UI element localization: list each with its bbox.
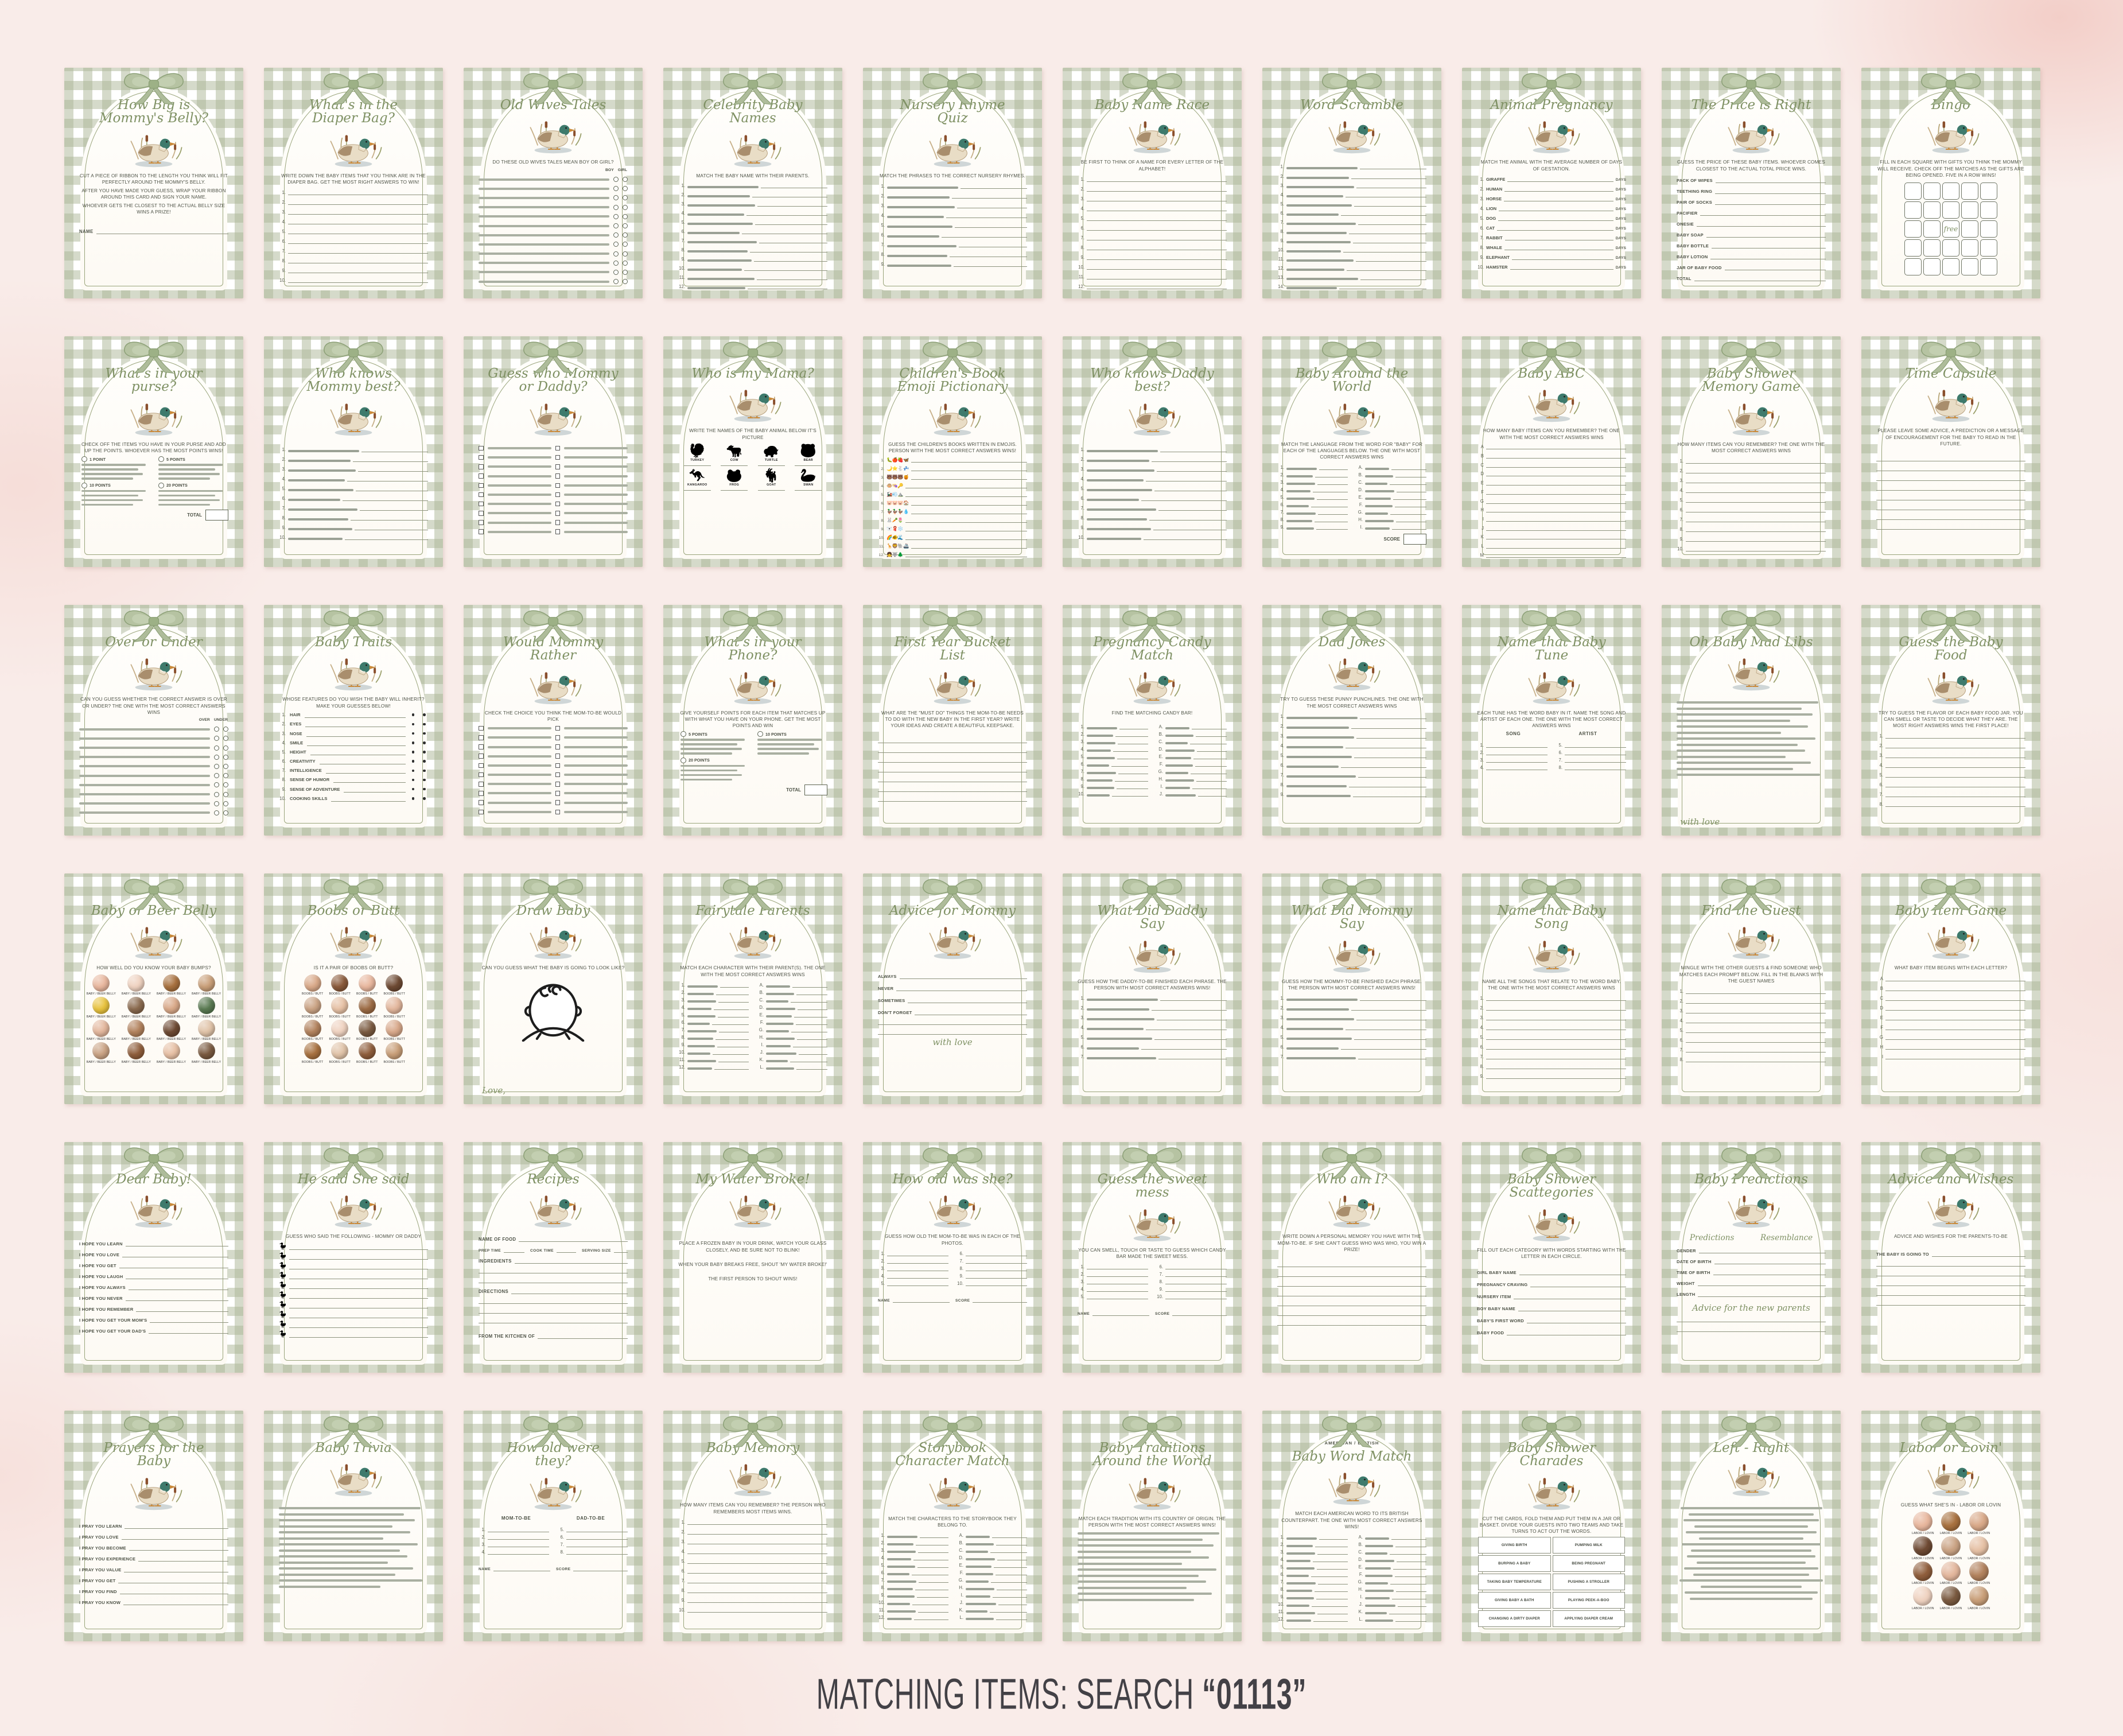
mommy-dot <box>412 797 415 800</box>
line-number: 4. <box>878 1273 885 1279</box>
checkbox <box>555 483 561 488</box>
answer-line <box>721 488 748 491</box>
answer-line <box>1087 273 1227 279</box>
checkbox <box>479 511 484 516</box>
either-or-row <box>479 491 628 498</box>
question-text-line <box>1087 469 1154 472</box>
answer-line <box>718 1011 749 1017</box>
line-number: 5. <box>1078 1035 1084 1040</box>
photo-label: LABOR / LOVIN <box>1940 1557 1962 1560</box>
answer-line <box>333 776 406 783</box>
answer-line <box>714 1063 749 1070</box>
line-number: 1. <box>279 712 286 717</box>
choice-circle <box>623 186 628 191</box>
column-headers: SONGARTIST <box>1477 731 1626 738</box>
question-line: 9. <box>279 523 428 530</box>
fine-print-line <box>81 477 133 480</box>
numbered-answer-line: 6. <box>678 1566 827 1574</box>
checkbox <box>479 800 484 805</box>
game-card: RecipesNAME OF FOODPREP TIMECOOK TIMESER… <box>464 1142 643 1373</box>
card-instructions: PLACE A FROZEN BABY IN YOUR DRINK, WATCH… <box>678 1240 827 1253</box>
question-text-line <box>1286 756 1352 758</box>
card-instructions: DO THESE OLD WIVES TALES MEAN BOY OR GIR… <box>479 159 628 165</box>
question-text-line <box>288 450 359 452</box>
animal-name: WHALE <box>1486 245 1502 250</box>
question-line: 6. <box>1078 1042 1227 1050</box>
gestation-match-line: 9.ELEPHANTDAYS <box>1477 253 1626 260</box>
line-number: 8. <box>557 1549 564 1555</box>
game-card: Nursery Rhyme QuizMATCH THE PHRASES TO T… <box>863 68 1042 298</box>
blank-answer-line <box>479 1296 628 1304</box>
answer-line <box>1686 496 1826 503</box>
line-number: 7. <box>1677 517 1683 522</box>
photo-label: BOOBS / BUTT <box>302 1015 324 1019</box>
labeled-answer-line: BABY FOOD <box>1477 1326 1626 1335</box>
line-letter: C <box>1477 463 1484 468</box>
card-body: PLEASE LEAVE SOME ADVICE, A PREDICTION O… <box>1875 426 2027 558</box>
match-text-line <box>687 1067 712 1070</box>
game-card: How old were they?MOM-TO-BEDAD-TO-BE1.2.… <box>464 1411 643 1641</box>
answer-line <box>1341 1043 1426 1050</box>
line-letter: D <box>1876 1005 1883 1011</box>
match-line: K. <box>1356 1607 1426 1614</box>
question-text-line <box>1087 999 1158 1001</box>
line-number: 4. <box>479 1549 485 1555</box>
photo-label: LABOR / LOVIN <box>1968 1582 1990 1585</box>
line-letter: A <box>1876 976 1883 981</box>
match-text-line <box>1087 735 1113 737</box>
duck-illustration <box>722 1187 784 1232</box>
fine-print-line <box>479 243 609 246</box>
photo-cell: BABY / BEER BELLY <box>157 974 186 996</box>
photo-cell: BOOBS / BUTT <box>384 1042 406 1064</box>
match-line: 3. <box>878 1545 948 1553</box>
match-text-line <box>1087 794 1110 797</box>
line-label: BABY BOTTLE <box>1677 243 1709 248</box>
spacer <box>279 1502 428 1503</box>
line-marker: 8. <box>878 1585 885 1590</box>
fine-print-line <box>1078 1593 1212 1595</box>
answer-line <box>1152 456 1227 462</box>
answer-line <box>1396 1586 1426 1592</box>
duck-illustration <box>1521 113 1582 157</box>
answer-line <box>1565 764 1626 770</box>
fine-print-line <box>681 765 745 767</box>
line-label: I PRAY YOU BECOME <box>79 1545 126 1551</box>
numbered-answer-line: 5. <box>1078 213 1227 221</box>
match-columns: 1.2.3.4.5.6.7.8.9.10.11.12.A.B.C.D.E.F.G… <box>878 1531 1027 1620</box>
answer-line <box>795 488 822 491</box>
answer-line <box>966 1257 1027 1264</box>
answer-line <box>1198 790 1227 797</box>
numbered-answer-line: 2. <box>1477 748 1547 755</box>
choice-row <box>79 735 228 742</box>
mommy-dot <box>412 741 415 744</box>
line-marker: B. <box>757 990 764 995</box>
answer-line <box>1349 228 1426 234</box>
answer-line <box>761 182 828 188</box>
days-suffix: DAYS <box>1616 178 1626 182</box>
line-marker: I. <box>956 1593 963 1598</box>
days-suffix: DAYS <box>1616 217 1626 221</box>
line-marker: L. <box>1356 1617 1363 1622</box>
card-body: GUESS WHO SAID THE FOLLOWING - MOMMY OR … <box>278 1232 429 1364</box>
line-number: 1. <box>1277 714 1284 719</box>
either-or-row <box>479 500 628 507</box>
answer-line <box>716 1034 749 1040</box>
answer-line <box>356 485 428 491</box>
answer-line <box>614 1246 628 1253</box>
numbered-answer-line: 1. <box>479 1525 549 1532</box>
checkbox <box>479 744 484 749</box>
fine-print-line <box>158 495 215 497</box>
match-left-column: 1.2.3.4.5.6.7.8.9.10.11.12. <box>1277 1532 1348 1622</box>
answer-line <box>795 463 822 466</box>
game-card: Who knows Mommy best?1.2.3.4.5.6.7.8.9.1… <box>264 336 443 567</box>
duck-illustration <box>1920 113 1982 157</box>
numbered-answer-line: 7. <box>1677 515 1826 522</box>
checkbox <box>479 520 484 525</box>
card-instructions: FILL OUT EACH CATEGORY WITH WORDS STARTI… <box>1477 1247 1626 1260</box>
column-header: MOM-TO-BE <box>501 1516 531 1523</box>
lettered-answer-line: E <box>1876 1013 2025 1020</box>
question-line: 3. <box>1277 181 1426 188</box>
line-number: 7. <box>1677 1047 1683 1053</box>
numbered-answer-line: 10. <box>1078 262 1227 270</box>
numbered-answer-line: 1. <box>1078 174 1227 182</box>
line-label: I PRAY YOU GET <box>79 1578 115 1583</box>
bingo-cell <box>1904 201 1922 219</box>
numbered-answer-line: 3. <box>279 207 428 215</box>
answer-line <box>721 463 748 466</box>
line-number: 6. <box>1277 211 1284 216</box>
answer-line <box>796 1063 827 1070</box>
question-line: 11. <box>1277 255 1426 262</box>
question-line: 3. <box>1078 1013 1227 1020</box>
fine-print-line <box>1701 1586 1802 1588</box>
numbered-answer-line: 4. <box>1876 760 2025 768</box>
line-marker: C. <box>1356 1549 1363 1555</box>
match-text-line <box>1286 490 1311 492</box>
match-line: 8. <box>1277 1584 1348 1592</box>
option-text-line <box>488 746 551 748</box>
line-number: 4. <box>279 740 286 745</box>
duck-silhouette-icon: 🦆 <box>279 1331 287 1338</box>
match-text-line <box>966 1618 994 1620</box>
option-text-line <box>564 811 628 813</box>
answer-line <box>149 1327 228 1334</box>
answer-line <box>305 712 406 718</box>
line-number: 2. <box>1277 174 1284 179</box>
answer-line <box>1510 263 1613 270</box>
emoji-clue: 🌙⭐🐇💤 <box>886 467 909 471</box>
numbered-answer-line: 7. <box>956 1256 1027 1264</box>
option-text-line <box>488 465 551 468</box>
line-number: 1. <box>678 183 685 188</box>
numbered-answer-line: 7. <box>1677 1045 1826 1053</box>
fine-print-line <box>79 747 210 749</box>
line-number: 1. <box>1078 1264 1084 1269</box>
points-circle <box>81 456 87 462</box>
line-letter: K <box>1477 534 1484 539</box>
answer-line <box>1360 163 1427 169</box>
answer-line <box>1196 731 1227 737</box>
answer-line <box>358 465 428 472</box>
line-label: I PRAY YOU FIND <box>79 1589 117 1594</box>
answer-line <box>1192 723 1227 729</box>
spacer <box>878 1288 1027 1292</box>
points-items <box>81 490 149 506</box>
points-label: 5 POINTS <box>166 457 185 462</box>
duck-illustration <box>522 395 584 440</box>
blank-answer-line <box>1277 1260 1426 1267</box>
answer-line <box>719 1026 749 1032</box>
line-marker: 5. <box>1277 495 1284 500</box>
answer-line <box>351 514 428 521</box>
answer-line <box>966 1265 1027 1271</box>
answer-line <box>878 776 1027 782</box>
write-in-field: NAME <box>1078 1307 1149 1316</box>
line-marker: G. <box>956 1578 963 1583</box>
bingo-cell <box>1980 239 1997 257</box>
numbered-answer-line: 5. <box>678 1556 827 1564</box>
fine-print-line <box>279 1507 421 1509</box>
line-number: 2. <box>678 1529 685 1535</box>
either-or-row <box>479 472 628 479</box>
photo-cell: BOOBS / BUTT <box>302 1020 324 1042</box>
choice-circle <box>613 251 619 257</box>
numbered-answer-line: 3. <box>1078 1277 1148 1284</box>
answer-line <box>289 1322 428 1328</box>
match-text-line <box>966 1573 993 1575</box>
card-instructions: HOW MANY BABY ITEMS CAN YOU REMEMBER? TH… <box>1477 428 1626 440</box>
answer-line <box>519 1236 628 1242</box>
match-line: 9. <box>1277 522 1348 530</box>
numbered-answer-line: 1. <box>678 1517 827 1525</box>
answer-line <box>1885 752 2025 758</box>
answer-line <box>1686 988 1826 994</box>
photo-cell: BOOBS / BUTT <box>329 997 351 1019</box>
emoji-clue-row: 2.🌙⭐🐇💤 <box>878 465 1027 471</box>
question-text-line <box>687 269 742 271</box>
match-text-line <box>1286 520 1312 522</box>
line-label: BABY SOAP <box>1677 232 1704 238</box>
match-text-line <box>887 1566 915 1568</box>
blank-answer-line <box>878 1017 1027 1025</box>
bow-icon <box>316 605 391 647</box>
line-marker: C. <box>956 1548 963 1553</box>
daddy-dot <box>423 732 426 735</box>
answer-line <box>954 261 1027 267</box>
card-instructions: GUESS THE PRICE OF THESE BABY ITEMS. WHO… <box>1677 159 1826 172</box>
photo-cell: BOOBS / BUTT <box>356 997 378 1019</box>
match-line: 6. <box>1277 500 1348 507</box>
choice-circle <box>214 736 219 741</box>
line-number: 6. <box>1277 1044 1284 1050</box>
labeled-answer-line: PACIFIER <box>1677 207 1826 216</box>
answer-line <box>991 1576 1027 1583</box>
answer-line <box>1395 471 1426 477</box>
answer-line <box>1395 1615 1426 1622</box>
line-number: 9. <box>1477 1074 1484 1079</box>
line-label: I HOPE YOU LOVE <box>79 1252 119 1257</box>
answer-line <box>1360 274 1426 280</box>
card-instructions: AFTER YOU HAVE MADE YOUR GUESS, WRAP YOU… <box>79 188 228 200</box>
question-text-line <box>1286 250 1341 253</box>
photo-cell: BOOBS / BUTT <box>329 1020 351 1042</box>
answer-line <box>1486 552 1626 558</box>
answer-line <box>289 1292 428 1299</box>
photo-circle <box>304 1020 321 1037</box>
photo-label: BOOBS / BUTT <box>384 992 406 996</box>
match-line: 3. <box>1078 737 1148 744</box>
question-text-line <box>1286 241 1351 243</box>
answer-line <box>1715 199 1826 205</box>
photo-label: BABY / BEER BELLY <box>122 1038 151 1041</box>
line-label: TOTAL <box>1677 276 1692 281</box>
fine-print-line <box>1078 1563 1182 1565</box>
card-body: TRY TO GUESS THESE PUNNY PUNCHLINES. THE… <box>1276 694 1428 826</box>
numbered-answer-line: 2. <box>678 1527 827 1535</box>
card-body: PLACE A FROZEN BABY IN YOUR DRINK, WATCH… <box>677 1232 829 1364</box>
choice-circle <box>223 782 228 787</box>
game-card: Dad JokesTRY TO GUESS THESE PUNNY PUNCHL… <box>1262 605 1441 836</box>
line-letter: L <box>1477 543 1484 549</box>
line-number: 2. <box>1277 1005 1284 1011</box>
line-number: 9. <box>1677 537 1683 542</box>
line-number: 3. <box>678 1539 685 1544</box>
match-line: 11. <box>878 1605 948 1613</box>
duck-illustration <box>1720 113 1782 157</box>
answer-line <box>1686 1017 1826 1023</box>
choice-circle <box>613 177 619 182</box>
line-marker: A. <box>1356 1535 1363 1540</box>
fine-print-line <box>1677 737 1815 740</box>
answer-line <box>878 747 1027 753</box>
line-number: 6. <box>557 1535 564 1540</box>
choice-circle <box>623 195 628 200</box>
daddy-dot <box>423 779 426 782</box>
answer-line <box>905 525 1027 531</box>
question-line: 5. <box>1277 1032 1426 1040</box>
card-body: NAME OF FOODPREP TIMECOOK TIMESERVING SI… <box>477 1232 629 1364</box>
match-text-line <box>687 1038 713 1040</box>
line-marker: 10. <box>1078 791 1084 797</box>
line-marker: 3. <box>678 997 685 1003</box>
answer-line <box>1393 494 1426 500</box>
numbered-answer-line: 5. <box>1556 740 1626 748</box>
answer-line <box>1686 477 1826 483</box>
labeled-answer-line: I HOPE YOU LOVE <box>79 1249 228 1257</box>
choice-row <box>479 185 628 192</box>
card-body: I HOPE YOU LEARNI HOPE YOU LOVEI HOPE YO… <box>78 1232 230 1364</box>
emoji-clue: 🦆🦆🦆💧 <box>886 510 909 514</box>
card-body: GUESS THE PRICE OF THESE BABY ITEMS. WHO… <box>1675 157 1827 289</box>
answer-line <box>1277 1290 1426 1296</box>
question-line: 6. <box>1277 209 1426 216</box>
question-text-line <box>687 259 752 262</box>
question-text-line <box>887 206 955 208</box>
blank-answer-line <box>1876 522 2025 530</box>
labeled-answer-line: PREGNANCY CRAVING <box>1477 1277 1626 1287</box>
line-marker: 4. <box>1078 747 1084 752</box>
answer-column: 1.2.3.4. <box>479 1525 549 1555</box>
choice-header: BOY <box>605 168 614 174</box>
fine-print-line <box>1684 1567 1818 1570</box>
fine-print-line <box>681 779 732 781</box>
choice-row <box>79 726 228 733</box>
trait-row: 9.SENSE OF ADVENTURE <box>279 786 428 793</box>
photo-label: BOOBS / BUTT <box>356 1061 378 1064</box>
choice-circle <box>223 745 228 751</box>
choice-circle <box>223 773 228 778</box>
match-text-line <box>1087 772 1116 774</box>
gestation-match-line: 4.LIONDAYS <box>1477 204 1626 211</box>
card-instructions: WHOSE FEATURES DO YOU WISH THE BABY WILL… <box>279 696 428 709</box>
charades-word-cell: GIVING BIRTH <box>1478 1537 1551 1554</box>
answer-line <box>1146 1024 1227 1030</box>
line-marker: F. <box>1156 762 1163 767</box>
trait-row: 8.SENSE OF HUMOR <box>279 776 428 783</box>
answer-column: 6.7.8.9.10. <box>1156 1262 1227 1299</box>
match-line: A. <box>1356 463 1426 470</box>
line-number: 10. <box>1677 546 1683 552</box>
line-number: 8. <box>279 515 286 521</box>
question-line: 8. <box>678 246 827 253</box>
match-line: H. <box>757 1032 827 1040</box>
bow-icon <box>1314 68 1390 110</box>
duck-illustration <box>522 1187 584 1232</box>
bow-icon <box>116 605 192 647</box>
answer-line <box>896 985 1027 991</box>
match-line: 5. <box>1078 752 1148 759</box>
line-marker: 3. <box>1277 480 1284 485</box>
answer-line <box>1686 1027 1826 1033</box>
question-line: 1. <box>1277 712 1426 719</box>
points-group: 5 POINTS <box>158 456 226 480</box>
fine-print-line <box>279 1567 413 1570</box>
line-marker: 2. <box>678 990 685 995</box>
choice-row <box>79 772 228 779</box>
answer-line <box>912 1569 948 1575</box>
line-number: 6. <box>1477 1044 1484 1050</box>
answer-line <box>1315 1541 1348 1547</box>
answer-line <box>1317 479 1348 485</box>
answer-line <box>687 1587 827 1593</box>
question-line: 7. <box>1277 218 1426 225</box>
checkbox <box>555 735 561 740</box>
option-text-line <box>564 447 628 449</box>
line-marker: J. <box>757 1050 764 1055</box>
field-label: INGREDIENTS <box>479 1259 512 1264</box>
photo-label: BOOBS / BUTT <box>329 1038 351 1041</box>
card-body: CUT THE CARDS, FOLD THEM AND PUT THEM IN… <box>1476 1514 1627 1632</box>
line-number: 5. <box>279 229 286 234</box>
match-line: I. <box>757 1040 827 1047</box>
duck-illustration <box>1720 1187 1782 1232</box>
answer-line <box>990 1606 1027 1613</box>
line-marker: H. <box>757 1035 764 1040</box>
line-marker: 2. <box>878 1540 885 1545</box>
line-number: 2. <box>878 467 884 471</box>
numbered-answer-line: 5. <box>1078 1292 1148 1299</box>
fine-print-line <box>158 477 210 480</box>
answer-line <box>1885 995 2025 1001</box>
trait-label: NOSE <box>290 731 302 736</box>
line-number: 6. <box>1156 1264 1163 1269</box>
duck-silhouette-icon: 🦆 <box>279 1302 287 1308</box>
card-body: CUT A PIECE OF RIBBON TO THE LENGTH YOU … <box>78 171 230 289</box>
